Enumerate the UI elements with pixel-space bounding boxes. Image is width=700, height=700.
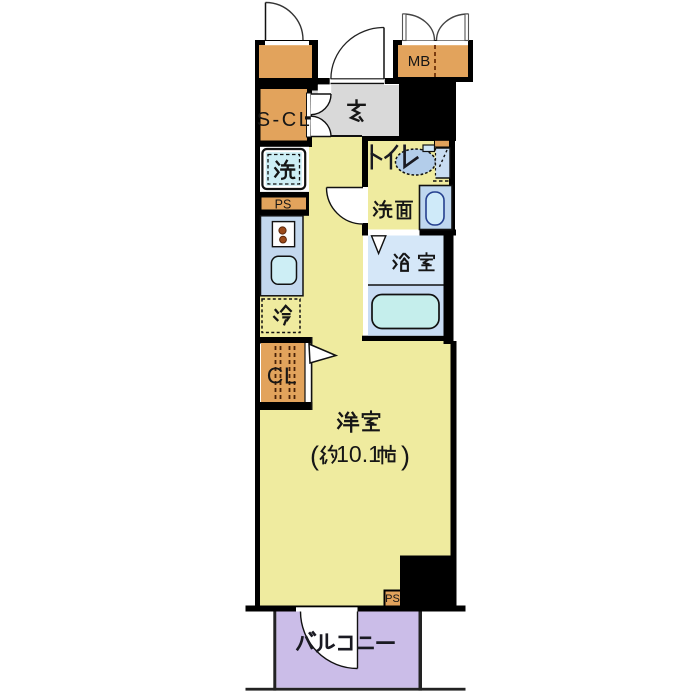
svg-text:CL: CL xyxy=(267,363,297,389)
svg-text:PS: PS xyxy=(385,593,400,605)
svg-text:): ) xyxy=(401,441,410,471)
svg-text:(: ( xyxy=(310,441,319,471)
svg-text:PS: PS xyxy=(275,198,292,212)
svg-text:S-CL: S-CL xyxy=(257,109,313,131)
svg-text:MB: MB xyxy=(408,53,431,70)
svg-text:10.1: 10.1 xyxy=(336,441,381,467)
